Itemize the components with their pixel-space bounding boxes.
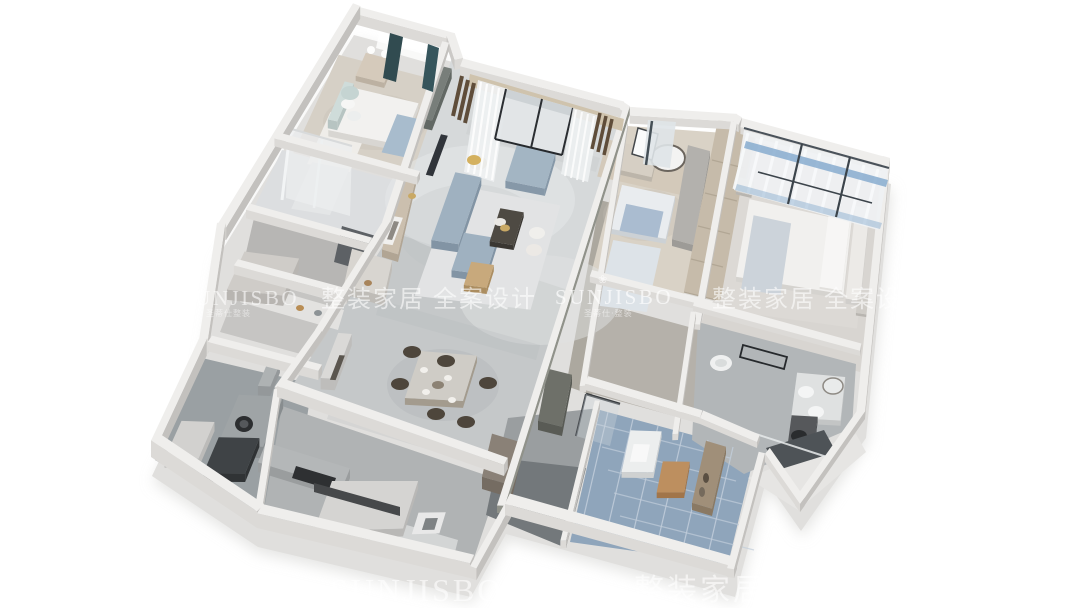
svg-text:SUNJISBO: SUNJISBO (555, 285, 673, 309)
svg-text:圣蒂仕整装: 圣蒂仕整装 (206, 308, 251, 318)
svg-text:SUNJISBO: SUNJISBO (330, 572, 503, 608)
svg-text:整装家居 全案设计: 整装家居 全案设计 (712, 286, 928, 313)
svg-text:整装家居 全案设计: 整装家居 全案设计 (321, 286, 537, 313)
svg-text:圣蒂仕·整装: 圣蒂仕·整装 (584, 308, 633, 318)
svg-text:SUNJISBO: SUNJISBO (181, 286, 299, 310)
svg-text:整装家居 全案设计: 整装家居 全案设计 (634, 574, 909, 607)
